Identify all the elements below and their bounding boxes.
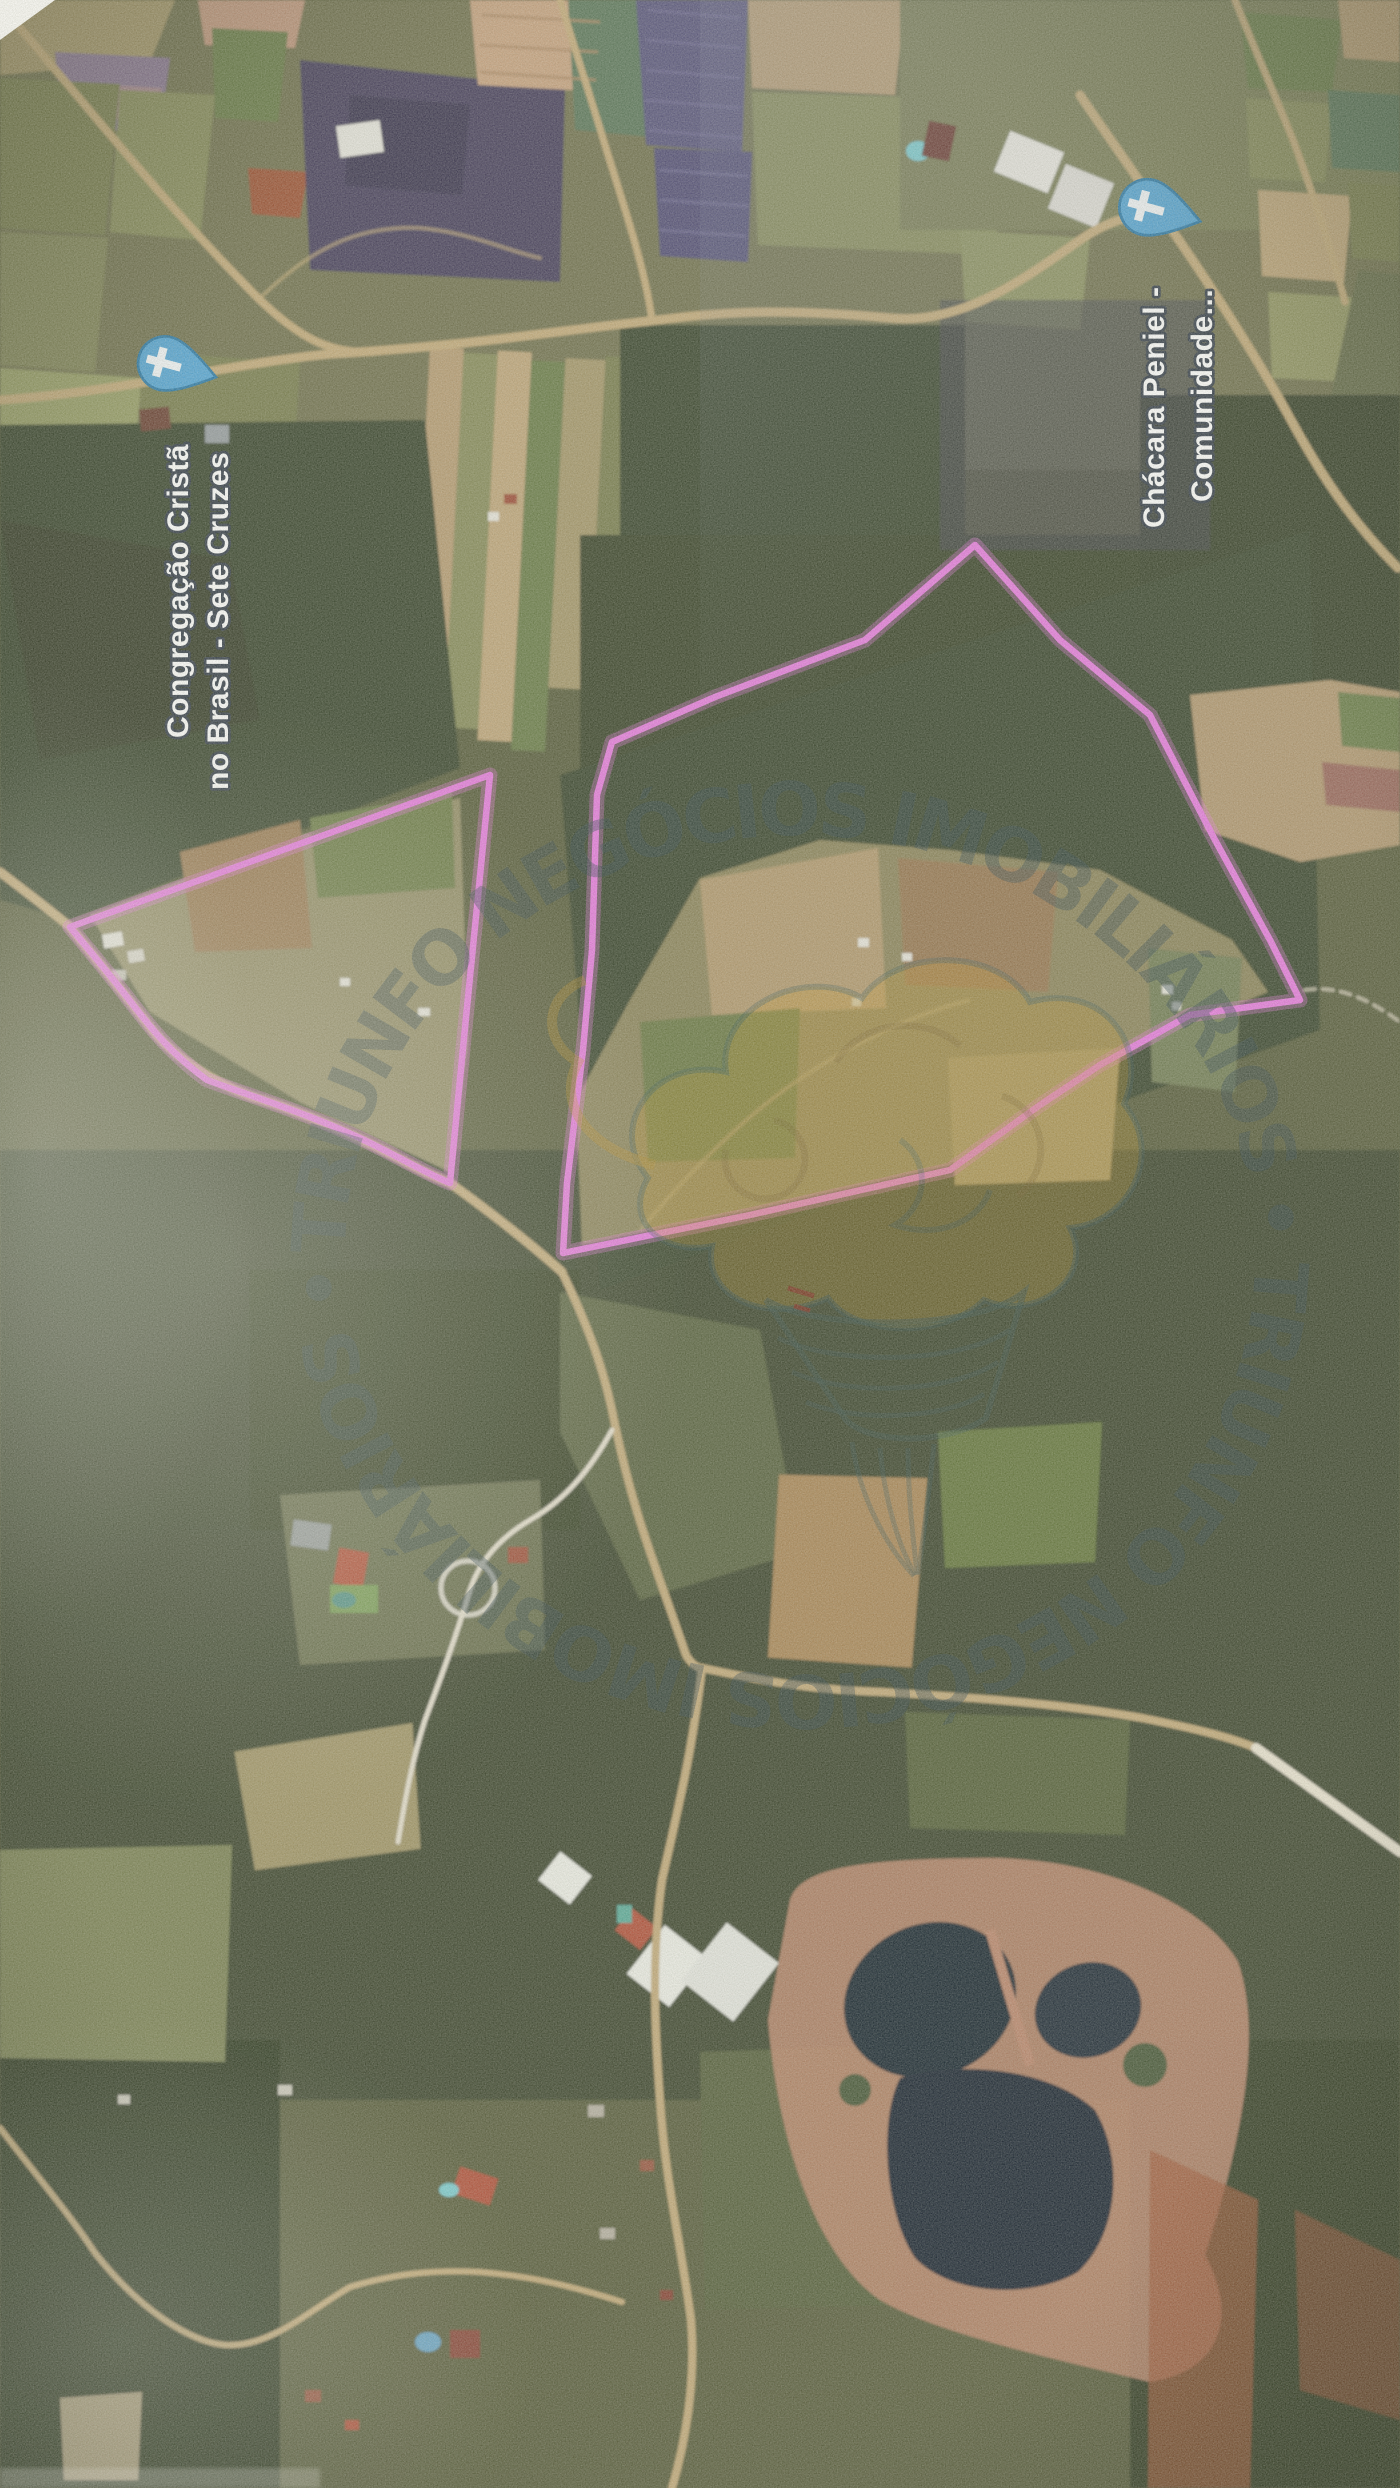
photo-grain-dark [0, 0, 1400, 2488]
satellite-map-photo: TRIUNFO NEGÓCIOS IMOBILIÁRIOS • TRIUNFO … [0, 0, 1400, 2488]
